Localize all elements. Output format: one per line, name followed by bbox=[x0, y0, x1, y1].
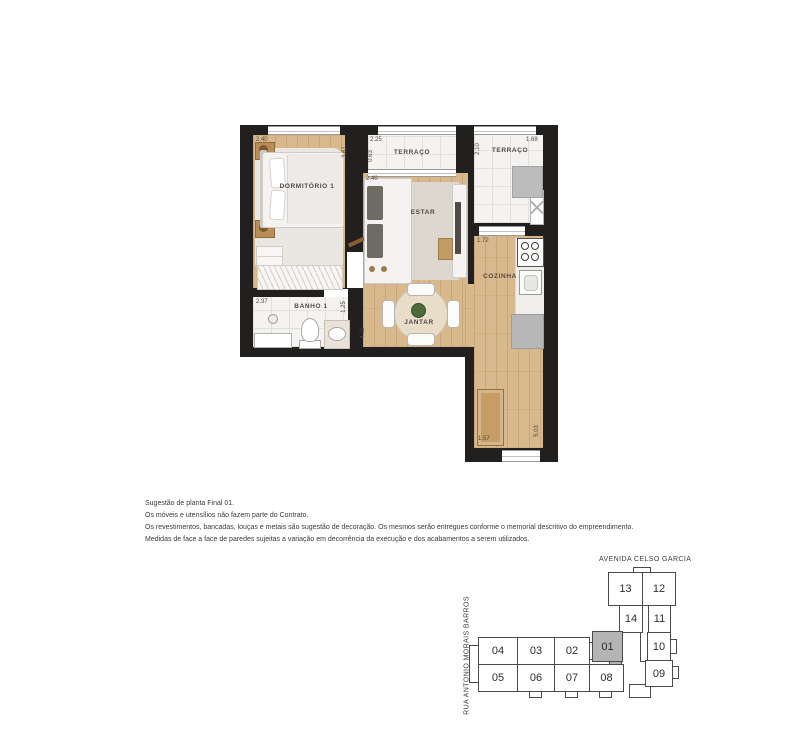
sofa-knob-2 bbox=[381, 266, 387, 272]
room-label-terraco1: TERRAÇO bbox=[394, 149, 430, 156]
dormitorio-window bbox=[268, 126, 340, 135]
room-label-estar: ESTAR bbox=[411, 209, 436, 216]
room-label-cozinha: COZINHA bbox=[483, 273, 517, 280]
keyplan-unit-07: 07 bbox=[554, 664, 590, 692]
keyplan-unit-03: 03 bbox=[517, 637, 555, 665]
stove-burner bbox=[521, 253, 529, 261]
dining-chair-left bbox=[382, 300, 395, 328]
keyplan-unit-09: 09 bbox=[645, 660, 673, 687]
stove bbox=[517, 238, 544, 267]
sofa-cushion-2 bbox=[367, 224, 383, 258]
disclaimer-line-1: Sugestão de planta Final 01. bbox=[145, 500, 234, 507]
passage-jantar-cozinha bbox=[465, 284, 474, 347]
terraco2-cozinha-door bbox=[479, 226, 525, 236]
keyplan-unit-10: 10 bbox=[647, 632, 671, 662]
side-table bbox=[438, 238, 453, 260]
stove-burner bbox=[531, 242, 539, 250]
keyplan-unit-02: 02 bbox=[554, 637, 590, 665]
dim-banho-depth: 1.25 bbox=[341, 294, 347, 320]
dim-terraco1-depth: 0.63 bbox=[368, 143, 374, 169]
washer bbox=[512, 166, 543, 198]
keyplan-unit-12: 12 bbox=[642, 572, 676, 606]
dim-jantar-height: 4.11 bbox=[360, 320, 366, 346]
shower-head bbox=[268, 314, 278, 324]
disclaimer-line-4: Medidas de face a face de paredes sujeit… bbox=[145, 536, 529, 543]
bed-pillow-2 bbox=[269, 190, 286, 221]
street-avenida-celso-garcia: AVENIDA CELSO GARCIA bbox=[599, 556, 691, 563]
dim-dormitorio-height: 3.61 bbox=[342, 139, 348, 165]
toilet-bowl bbox=[301, 318, 319, 342]
sofa-cushion-1 bbox=[367, 186, 383, 220]
dresser bbox=[256, 246, 283, 267]
fridge bbox=[511, 314, 544, 349]
bath-basin bbox=[328, 327, 346, 341]
dormitorio-door-opening bbox=[347, 252, 363, 288]
dim-terraco2-depth: 2.10 bbox=[475, 136, 481, 162]
keyplan-unit-05: 05 bbox=[478, 664, 518, 692]
keyplan-unit-01-highlighted: 01 bbox=[592, 631, 623, 662]
stove-burner bbox=[531, 253, 539, 261]
table-plant bbox=[411, 303, 426, 318]
keyplan-unit-11: 11 bbox=[648, 605, 671, 633]
sofa-knob-1 bbox=[369, 266, 375, 272]
entrance-door bbox=[502, 450, 540, 462]
kitchen-sink-basin bbox=[524, 275, 538, 291]
room-label-banho: BANHO 1 bbox=[294, 303, 327, 310]
keyplan-unit-13: 13 bbox=[608, 572, 643, 606]
estar-terraco-sliding-door bbox=[368, 169, 456, 177]
keyplan-unit-04: 04 bbox=[478, 637, 518, 665]
disclaimer-line-3: Os revestimentos, bancadas, louças e met… bbox=[145, 524, 633, 531]
keyplan-unit-14: 14 bbox=[619, 605, 643, 633]
dim-cozinha-width: 1.72 bbox=[477, 238, 489, 244]
room-label-dormitorio: DORMITÓRIO 1 bbox=[280, 183, 335, 190]
dim-hall-height: 5.03 bbox=[534, 418, 540, 444]
dim-terraco2-width: 1.68 bbox=[526, 137, 538, 143]
dim-banho-width: 2.37 bbox=[256, 299, 268, 305]
stove-burner bbox=[521, 242, 529, 250]
dim-dormitorio-width: 2.40 bbox=[256, 137, 268, 143]
dining-chair-bottom bbox=[407, 333, 435, 346]
keyplan-unit-08: 08 bbox=[589, 664, 624, 692]
wardrobe bbox=[257, 265, 343, 290]
tv bbox=[455, 202, 461, 254]
dim-hall-width: 1.57 bbox=[478, 436, 490, 442]
page: DORMITÓRIO 1 TERRAÇO TERRAÇO ESTAR COZIN… bbox=[0, 0, 800, 738]
room-label-jantar: JANTAR bbox=[404, 319, 433, 326]
shower-tray bbox=[254, 333, 292, 348]
dining-chair-top bbox=[407, 283, 435, 296]
terraco1-railing bbox=[378, 126, 456, 135]
dim-estar-width: 2.40 bbox=[366, 176, 378, 182]
terraco2-railing bbox=[474, 126, 536, 135]
disclaimer-line-2: Os móveis e utensílios não fazem parte d… bbox=[145, 512, 308, 519]
keyplan-unit-06: 06 bbox=[517, 664, 555, 692]
dining-chair-right bbox=[447, 300, 460, 328]
kitchen-sink bbox=[519, 270, 542, 295]
room-label-terraco2: TERRAÇO bbox=[492, 147, 528, 154]
